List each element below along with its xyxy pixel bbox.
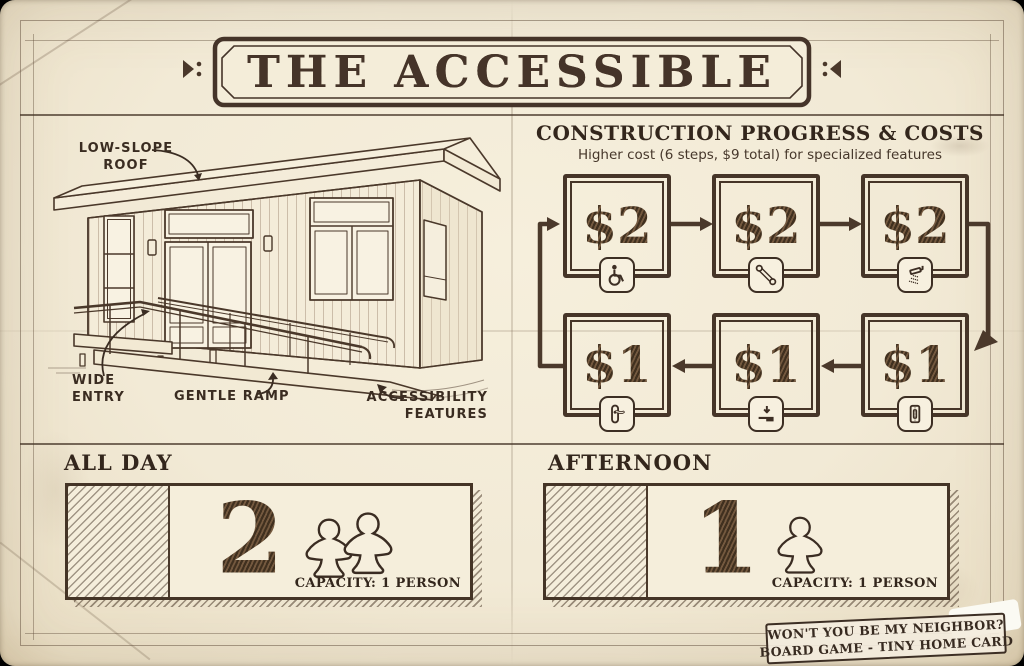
label-accessibility-features: ACCESSIBILITY FEATURES [358, 389, 488, 423]
meeple-icon [776, 511, 824, 577]
all-day-guest-count: 2 [216, 490, 284, 587]
light-switch-icon [902, 401, 928, 427]
step-cost: $2 [582, 201, 652, 251]
step-cost: $1 [731, 340, 801, 390]
grab-bar-icon [753, 262, 779, 288]
door-handle-icon [604, 401, 630, 427]
step-feature-chip [599, 396, 635, 432]
cost-step-box: $1 [861, 313, 969, 417]
label-wide-entry: WIDE ENTRY [72, 372, 152, 406]
banner-ornament-right [820, 56, 842, 82]
step-feature-chip [599, 257, 635, 293]
step-feature-chip [897, 257, 933, 293]
step-cost: $1 [880, 340, 950, 390]
step-cost: $2 [731, 201, 801, 251]
step-cost: $1 [582, 340, 652, 390]
label-gentle-ramp: GENTLE RAMP [174, 388, 304, 405]
wheelchair-icon [604, 262, 630, 288]
afternoon-box: 1 CAPACITY: 1 PERSON [543, 483, 950, 600]
lowered-counter-icon [753, 401, 779, 427]
title-banner: THE ACCESSIBLE [212, 36, 812, 108]
step-feature-chip [748, 396, 784, 432]
shower-icon [902, 262, 928, 288]
all-day-capacity: CAPACITY: 1 PERSON [295, 576, 461, 591]
card-frame-inner-left [33, 34, 34, 640]
banner-ornament-left [182, 56, 204, 82]
cost-step-box: $2 [861, 174, 969, 278]
construction-heading: CONSTRUCTION PROGRESS & COSTS [530, 121, 990, 145]
step-cost: $2 [880, 201, 950, 251]
afternoon-guest-count: 1 [692, 490, 760, 587]
afternoon-capacity: CAPACITY: 1 PERSON [772, 576, 938, 591]
section-divider-top [20, 114, 1004, 116]
page-title: THE ACCESSIBLE [212, 36, 812, 108]
step-feature-chip [748, 257, 784, 293]
cost-step-box: $2 [563, 174, 671, 278]
cost-step-box: $1 [712, 313, 820, 417]
afternoon-heading: AFTERNOON [548, 450, 712, 475]
cost-step-box: $2 [712, 174, 820, 278]
cost-step-box: $1 [563, 313, 671, 417]
tiny-home-card: THE ACCESSIBLE [0, 0, 1024, 666]
all-day-heading: ALL DAY [64, 450, 173, 475]
step-feature-chip [897, 396, 933, 432]
label-low-slope-roof: LOW-SLOPE ROOF [70, 140, 182, 174]
hatch-panel [68, 486, 170, 597]
hatch-panel [546, 486, 648, 597]
all-day-box: 2 CAPACITY: 1 PERSON [65, 483, 473, 600]
meeple-icon [342, 507, 394, 577]
